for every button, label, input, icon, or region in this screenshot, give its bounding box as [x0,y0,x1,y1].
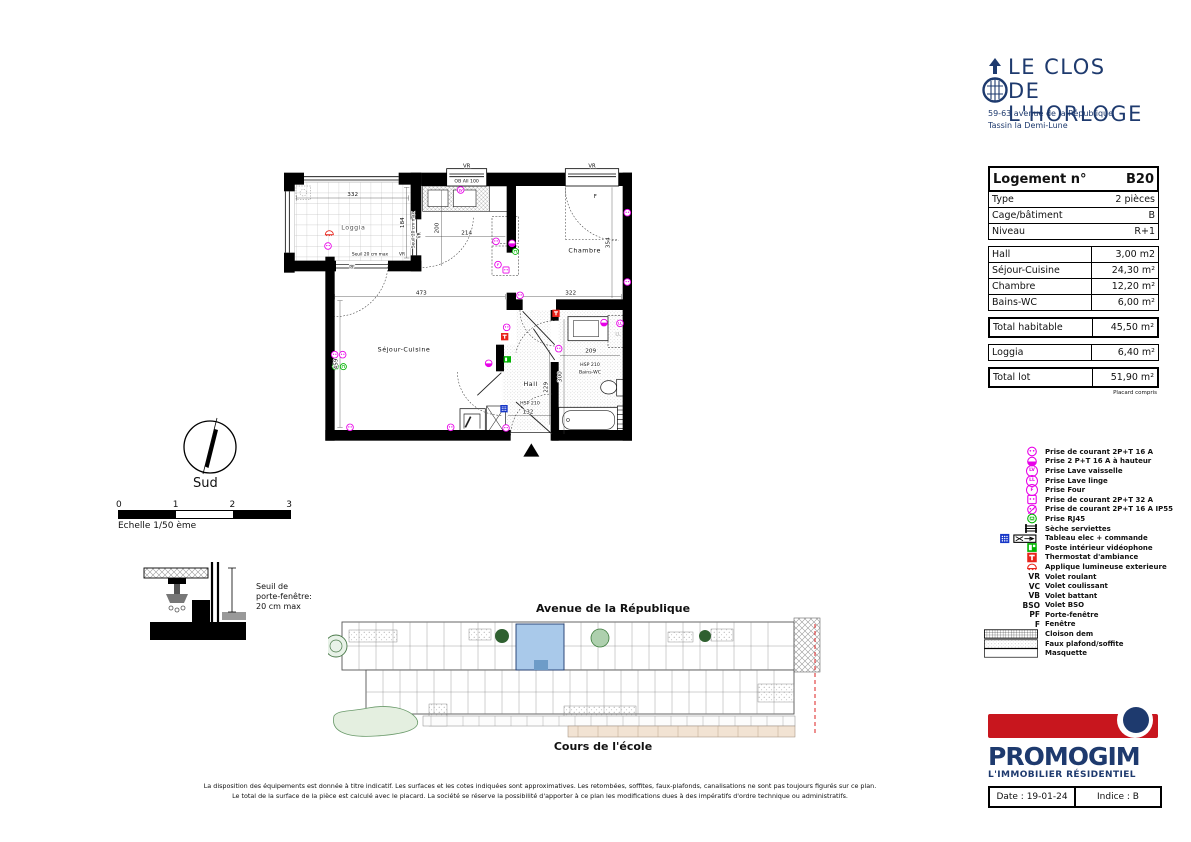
legend-item: Applique lumineuse exterieure [984,562,1164,572]
legend-item: F Fenêtre [984,620,1164,630]
total-habitable-row: Total habitable 45,50 m² [988,317,1159,338]
site-plan [328,616,834,740]
legend-label: Applique lumineuse exterieure [1040,563,1167,571]
entrance-arrow [523,443,539,456]
legend-label: Prise de courant 2P+T 16 A [1040,448,1153,456]
legend-label: Fenêtre [1040,620,1076,628]
legend-label: Cloison dem [1040,630,1093,638]
scale-caption: Echelle 1/50 ème [118,521,292,531]
legend-icon [984,648,1038,658]
legend-label: Thermostat d'ambiance [1040,553,1138,561]
table-row: Cage/bâtiment B [988,207,1159,224]
legend-label: Prise 2 P+T 16 A à hauteur [1040,457,1151,465]
legend: Prise de courant 2P+T 16 A Prise 2 P+T 1… [984,447,1164,658]
threshold-detail [138,560,250,652]
legend-label: Prise Four [1040,486,1085,494]
legend-label: Prise RJ45 [1040,515,1085,523]
legend-item: VB Volet battant [984,591,1164,601]
table-row: Séjour-Cuisine 24,30 m² [988,262,1159,279]
table-row: Hall 3,00 m2 [988,246,1159,263]
legend-code: VB [1028,591,1040,600]
table-row: Chambre 12,20 m² [988,278,1159,295]
dim-hall-h: 229 [543,382,549,393]
vr-kitchen: VR [463,163,471,169]
scale-tick: 1 [173,500,179,510]
sym-four: F [497,263,499,267]
legend-item: VR Volet roulant [984,572,1164,582]
f-mark-chambre: F [594,194,597,200]
loggia-row: Loggia 6,40 m² [988,344,1159,361]
dim-kitchen-h: 200 [435,222,441,233]
legend-item: Faux plafond/soffite [984,639,1164,649]
compass [180,415,244,477]
vr-loggia-v: VR [417,232,423,238]
legend-item: BSO Volet BSO [984,601,1164,611]
dim-bains-w: 209 [585,349,596,355]
dim-chambre-h: 354 [605,237,611,248]
dim-loggia-h: 184 [400,217,406,228]
total-lot-row: Total lot 51,90 m² [988,367,1159,388]
legend-code: PF [1029,610,1040,619]
legend-label: Tableau elec + commande [1040,534,1148,542]
dim-loggia-w: 332 [347,192,358,198]
brand-name: PROMOGIM [988,744,1158,770]
window-spec: OB All 100 [454,179,479,185]
table-header-label: Logement n° [990,172,1126,187]
legend-label: Volet battant [1040,592,1097,600]
vr-chambre: VR [588,163,596,169]
legend-label: Prise de courant 2P+T 32 A [1040,496,1153,504]
brand-dot [1123,707,1149,733]
legend-icon [1026,561,1038,572]
legend-label: Poste intérieur vidéophone [1040,544,1153,552]
unit-number: B20 [1126,172,1157,187]
legend-label: Sèche serviettes [1040,525,1111,533]
date-indice-bar: Date : 19-01-24 Indice : B [988,786,1162,808]
threshold-note: Seuil de porte-fenêtre: 20 cm max [256,582,312,612]
sym-ll: LL [618,322,622,326]
sym-lv: LV [459,188,464,192]
room-label-chambre: Chambre [568,248,601,255]
promogim-logo: PROMOGIM L'IMMOBILIER RÉSIDENTIEL [988,714,1158,780]
project-title-line1: LE CLOS [1008,56,1106,79]
legend-label: Porte-fenêtre [1040,611,1098,619]
legend-item: Masquette [984,648,1164,658]
legend-label: Volet coulissant [1040,582,1108,590]
street-label-top: Avenue de la République [478,602,748,615]
dim-sejour-w: 473 [416,291,427,297]
unit-info-table: Logement n° B20 Type 2 pièces Cage/bâtim… [988,166,1159,396]
compass-label: Sud [193,476,218,491]
scale-bar: 0 1 2 3 Echelle 1/50 ème [116,500,292,531]
legend-label: Volet BSO [1040,601,1084,609]
room-label-bains: Bains-WC [579,369,601,375]
legend-code: BSO [1023,601,1041,610]
dim-kitchen-w: 214 [461,231,472,237]
legend-icon [984,639,1038,649]
apartment-floor-plan: Loggia Séjour-Cuisine Chambre Hall Bains… [280,128,840,580]
legend-item: Cloison dem [984,629,1164,639]
pf-mark: PF [349,265,355,271]
room-label-loggia: Loggia [341,224,365,231]
seuil-note-h: Seuil 20 cm max [352,251,389,257]
hall-upper-floor [516,310,551,345]
hsp-hall: HSP 210 [520,401,540,407]
legend-label: Prise Lave vaisselle [1040,467,1123,475]
scale-tick: 0 [116,500,122,510]
legend-code: VR [1028,572,1040,581]
vr-loggia: VR [399,251,405,257]
dim-bains-h: 300 [557,371,563,382]
scale-tick: 2 [230,500,236,510]
legend-label: Prise de courant 2P+T 16 A IP55 [1040,505,1173,513]
indice-label: Indice : B [1074,788,1160,806]
table-row: Bains-WC 6,00 m² [988,294,1159,311]
legend-icon [984,629,1038,639]
legend-label: Masquette [1040,649,1087,657]
brand-tagline: L'IMMOBILIER RÉSIDENTIEL [988,770,1158,780]
table-footnote: Placard compris [988,388,1159,396]
dim-sejour-h: 459 [333,358,339,369]
legend-label: Faux plafond/soffite [1040,640,1123,648]
dim-chambre-w: 322 [565,291,576,297]
floor-plan-sheet: LE CLOS DE L'HORLOGE 59-63 avenue de la … [0,0,1191,842]
table-row: Type 2 pièces [988,191,1159,208]
hall-closet [460,406,505,434]
legend-label: Prise Lave linge [1040,477,1108,485]
dim-hall-w: 132 [523,409,534,415]
clock-icon [982,58,1008,110]
street-label-bottom: Cours de l'école [478,740,728,753]
legend-item: VC Volet coulissant [984,581,1164,591]
table-row: Niveau R+1 [988,223,1159,240]
legend-label: Volet roulant [1040,573,1096,581]
date-label: Date : 19-01-24 [990,788,1074,806]
legend-item: PF Porte-fenêtre [984,610,1164,620]
seuil-note-v: Seuil 20 cm max [411,211,417,248]
scale-tick: 3 [286,500,292,510]
table-header-row: Logement n° B20 [988,166,1159,192]
project-address-line1: 59-63 avenue de la République [988,108,1113,120]
disclaimer: La disposition des équipements est donné… [104,782,976,801]
ll-zone: LL [615,331,621,337]
project-address-line2: Tassin la Demi-Lune [988,120,1068,132]
room-label-hall: Hall [524,381,538,388]
hsp-bains: HSP 210 [580,362,600,368]
landscaping [333,706,417,736]
room-label-sejour: Séjour-Cuisine [378,345,431,353]
legend-code: VC [1029,582,1040,591]
